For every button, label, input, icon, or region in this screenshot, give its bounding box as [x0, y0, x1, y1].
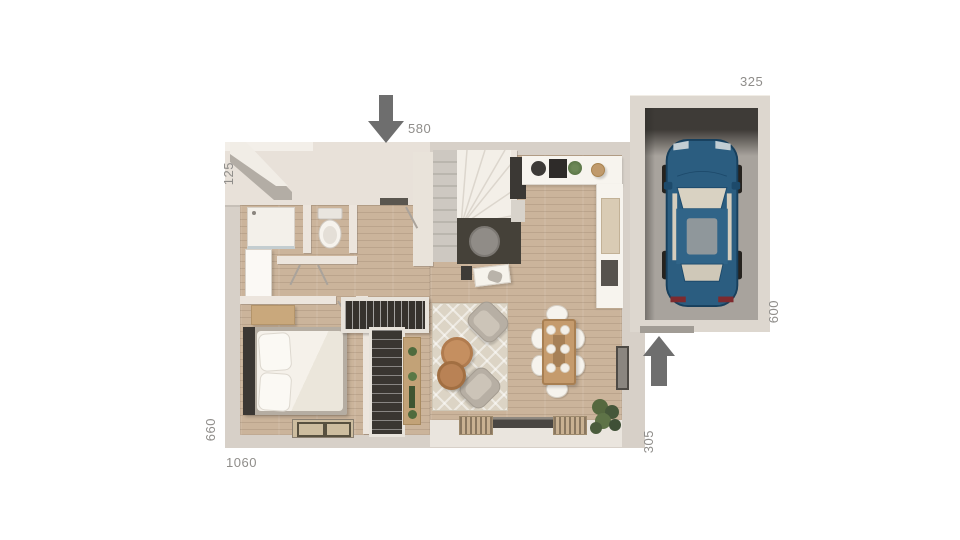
- kitchen-appliance: [601, 260, 618, 286]
- printer: [461, 266, 472, 280]
- entry-arrow-icon: [368, 95, 404, 143]
- bathroom-cabinet: [245, 249, 272, 301]
- sliding-door-track: [492, 419, 554, 428]
- interior-wall: [277, 256, 357, 264]
- pillow: [258, 372, 293, 412]
- headboard: [243, 327, 255, 415]
- plate: [546, 325, 556, 335]
- bench-tray: [409, 386, 415, 408]
- potted-plant: [588, 396, 624, 436]
- plate: [546, 363, 556, 373]
- dresser: [251, 305, 295, 325]
- kitchen-wood-front: [601, 198, 620, 254]
- dimension-label-garage-right: 600: [766, 300, 781, 323]
- garage-door-threshold: [640, 326, 694, 333]
- interior-wall: [413, 152, 433, 266]
- shutter-left: [459, 416, 493, 435]
- cooktop: [549, 159, 567, 178]
- bedside-rug: [292, 419, 354, 438]
- dimension-label-garage-top: 325: [740, 74, 763, 89]
- interior-wall: [240, 296, 336, 304]
- cabinet-panel: [511, 200, 525, 222]
- interior-wall: [303, 205, 311, 253]
- plate: [560, 344, 570, 354]
- plate: [546, 344, 556, 354]
- side-window: [616, 346, 629, 390]
- bench-plant: [408, 410, 417, 419]
- rug-panel: [325, 422, 351, 437]
- coffee-table: [437, 361, 466, 390]
- kitchen-plant: [568, 161, 582, 175]
- bed: [243, 327, 347, 415]
- dimension-label-left-upper: 125: [221, 162, 236, 185]
- bench-plant: [408, 347, 417, 356]
- dimension-label-bottom: 1060: [226, 455, 257, 470]
- dimension-label-left-lower: 660: [203, 418, 218, 441]
- front-door-threshold: [380, 198, 408, 205]
- round-side-table: [469, 226, 500, 257]
- dressing-bench: [403, 337, 421, 425]
- garage-entry-arrow-icon: [643, 336, 675, 386]
- bench-plant: [408, 372, 417, 381]
- interior-wall: [349, 205, 357, 253]
- dimension-label-right-lower: 305: [641, 430, 656, 453]
- floor-plan-canvas: 580 325 125 660 1060 305 600: [0, 0, 960, 540]
- closet-shelving: [369, 327, 405, 437]
- fruit-bowl: [591, 163, 605, 177]
- toilet: [315, 208, 345, 254]
- plate: [560, 325, 570, 335]
- rug-panel: [297, 422, 325, 437]
- pillow: [258, 332, 293, 372]
- shower-drain: [252, 211, 256, 215]
- kitchen-sink: [531, 161, 546, 176]
- car: [662, 138, 742, 308]
- dimension-label-front: 580: [408, 121, 431, 136]
- plate: [560, 363, 570, 373]
- garage-wall-shadow: [645, 108, 655, 320]
- shutter-right: [553, 416, 587, 435]
